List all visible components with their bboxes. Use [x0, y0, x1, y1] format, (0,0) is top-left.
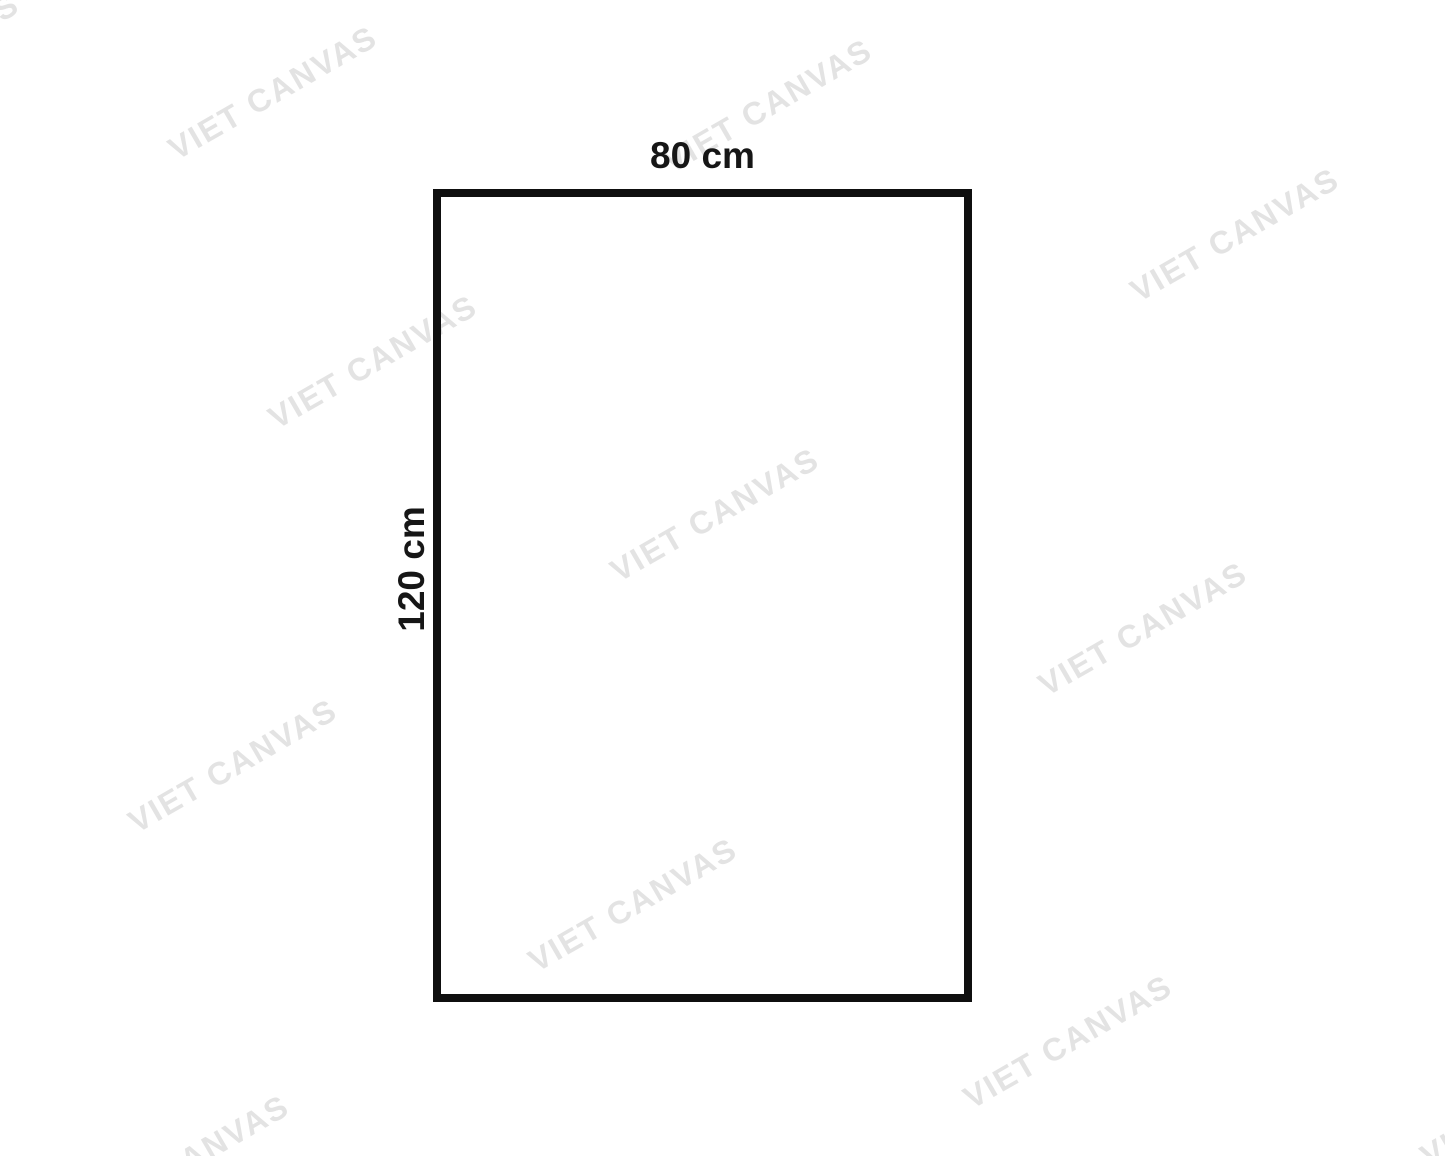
watermark-text: VIET CANVAS — [1124, 160, 1346, 309]
watermark-text: VIET CANVAS — [1032, 554, 1254, 703]
rectangle-outline — [433, 189, 972, 1002]
watermark-text: VIET CANVAS — [74, 1087, 296, 1156]
watermark-text: VIET CANVAS — [162, 18, 384, 167]
width-label: 80 cm — [433, 129, 972, 183]
watermark-text: VIET CANVAS — [122, 691, 344, 840]
watermark-text: VIET CANVAS — [1414, 1025, 1445, 1156]
size-diagram: VIET CANVASVIET CANVASVIET CANVASVIET CA… — [0, 0, 1445, 1156]
watermark-text: VIET CANVAS — [0, 0, 26, 135]
watermark-text: VIET CANVAS — [957, 967, 1179, 1116]
height-label: 120 cm — [391, 506, 433, 632]
